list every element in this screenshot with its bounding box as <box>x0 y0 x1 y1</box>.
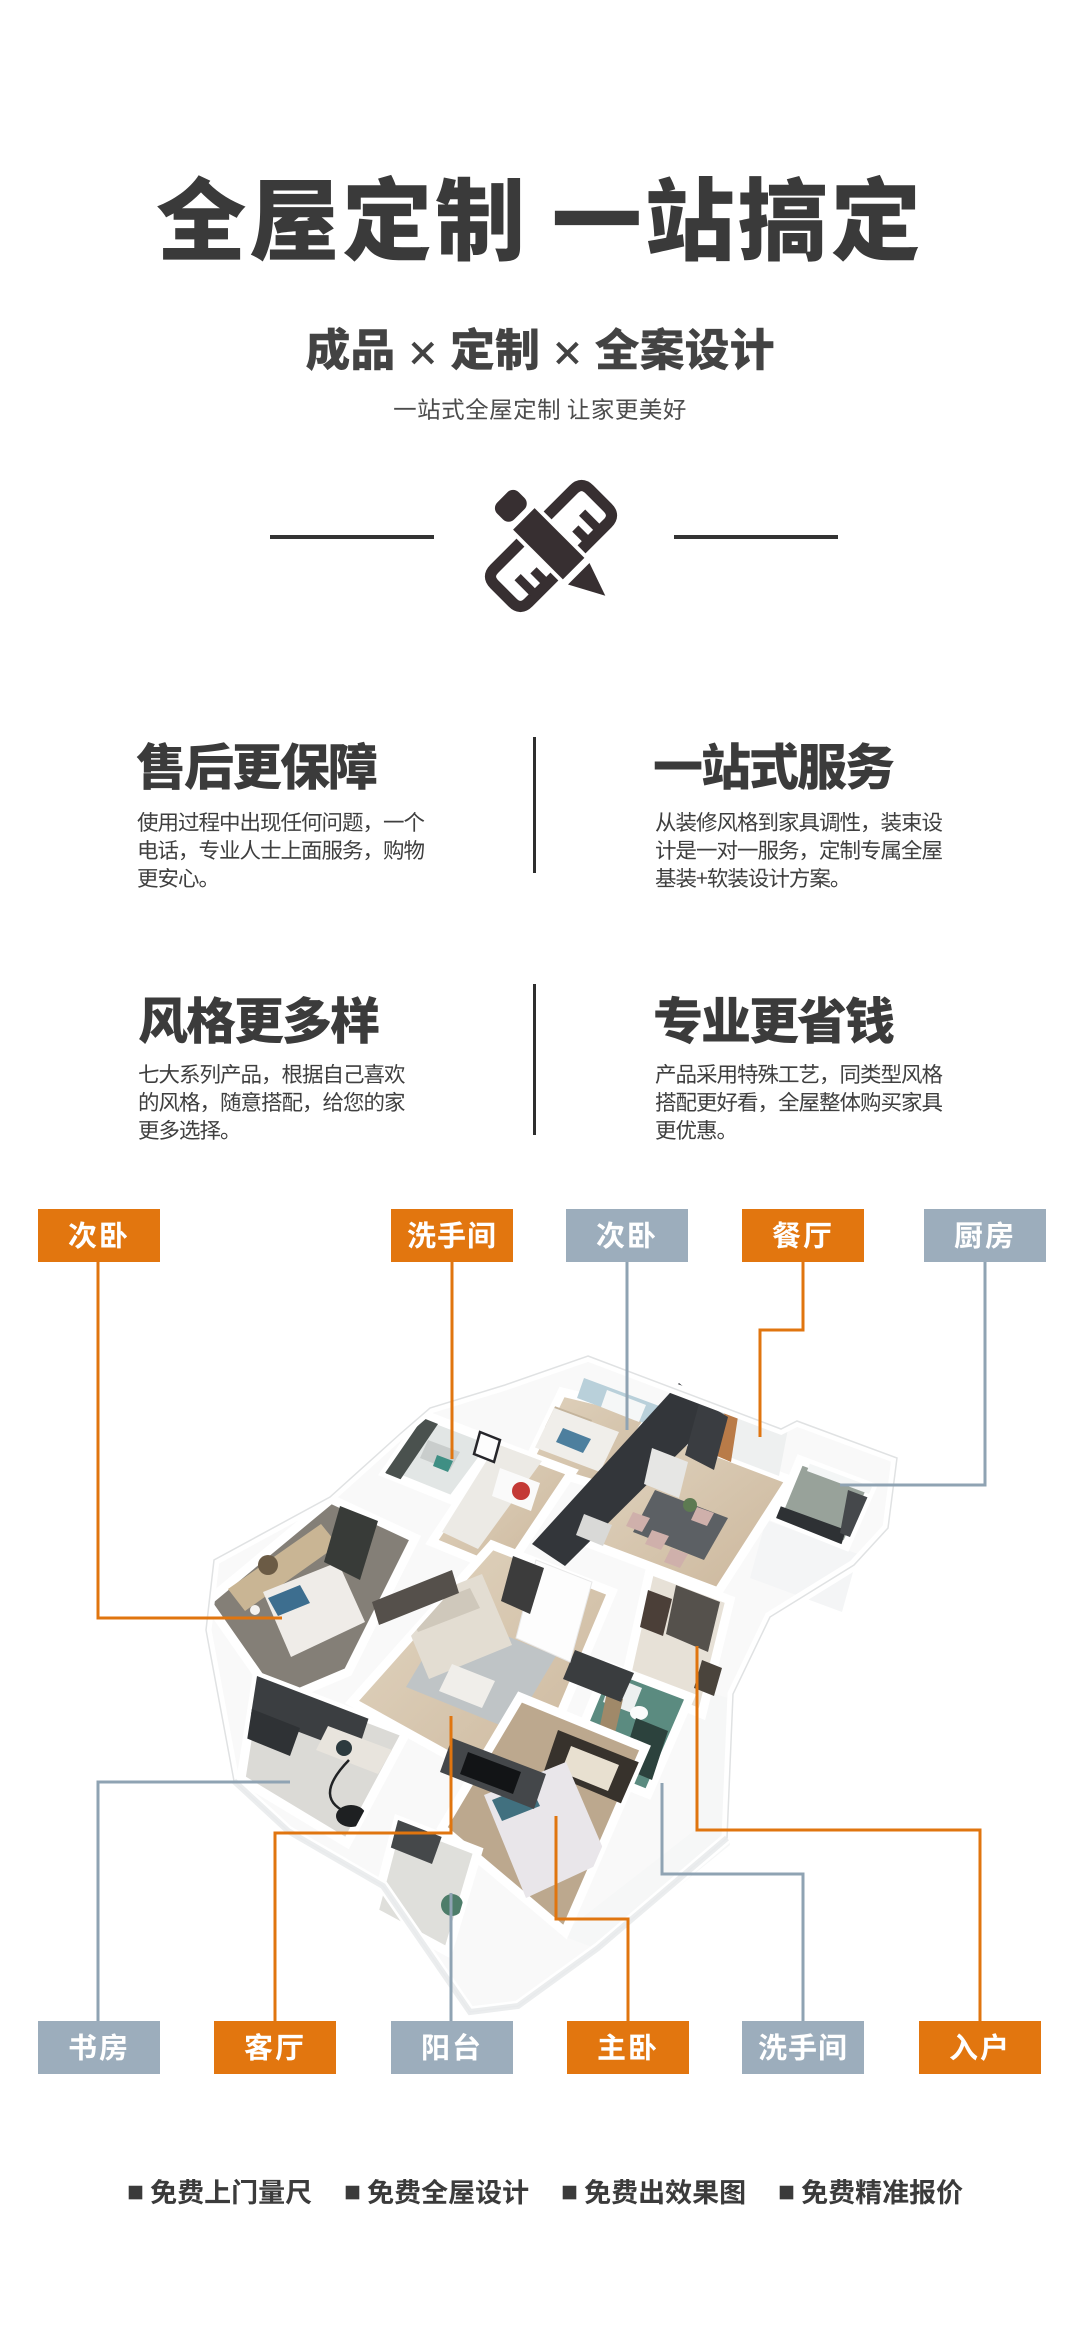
svg-text:阳台: 阳台 <box>421 2025 483 2067</box>
svg-text:次卧: 次卧 <box>68 1213 130 1255</box>
svg-text:厨房: 厨房 <box>954 1213 1016 1255</box>
svg-text:书房: 书房 <box>68 2025 130 2067</box>
svg-text:洗手间: 洗手间 <box>758 2025 848 2067</box>
svg-text:入户: 入户 <box>949 2025 1011 2067</box>
svg-text:洗手间: 洗手间 <box>407 1213 497 1255</box>
svg-text:次卧: 次卧 <box>596 1213 658 1255</box>
svg-text:客厅: 客厅 <box>244 2025 306 2067</box>
svg-text:餐厅: 餐厅 <box>772 1213 834 1255</box>
svg-text:主卧: 主卧 <box>597 2025 659 2067</box>
